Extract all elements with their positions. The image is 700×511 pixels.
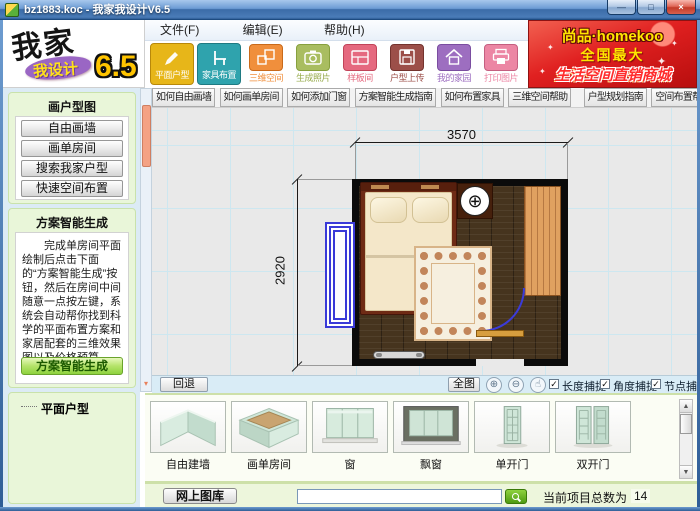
close-button[interactable]: × [666,0,696,15]
toolbar-myhome-button[interactable]: 我的家园 [432,43,476,85]
camera-icon [303,47,323,67]
tab-smart-guide[interactable]: 方案智能生成指南 [355,88,437,107]
dimension-height-label: 2920 [273,251,288,291]
thumb-double-door[interactable] [555,401,631,453]
dimension-line-left [297,179,298,366]
thumb-single-door[interactable] [474,401,550,453]
tab-3d-help[interactable]: 三维空间帮助 [508,88,571,107]
search-icon [512,493,519,500]
door-opening [476,359,524,366]
window-symbol[interactable] [325,222,355,328]
tab-how-free-wall[interactable]: 如何自由画墙 [152,88,215,107]
free-wall-button[interactable]: 自由画墙 [21,120,123,137]
room-icon [350,47,370,67]
search-input[interactable] [297,489,502,504]
snap-length-checkbox[interactable]: ✓ [549,379,559,389]
logo-text-2: 我设计 [32,57,78,81]
project-count-value: 14 [631,489,650,503]
logo-version: 6.5 [95,50,137,84]
snap-node-checkbox[interactable]: ✓ [651,379,661,389]
statusbar: 网上图库 当前项目总数为 14 [145,483,697,507]
sidebar-section-smart: 方案智能生成 完成单房间平面绘制后点击下面的“方案智能生成”按钮，然后在房间中间… [8,208,136,388]
door-leaf[interactable] [476,330,524,337]
app-window: bz1883.koc - 我家我设计V6.5 — □ × 我家 我设计 6.5 … [0,0,700,511]
search-button[interactable] [505,489,527,504]
zoom-out-icon[interactable]: ⊖ [508,377,524,393]
scrollbar-thumb[interactable] [142,105,151,167]
zoom-in-icon[interactable]: ⊕ [486,377,502,393]
online-gallery-button[interactable]: 网上图库 [163,488,237,504]
toolbar-upload-button[interactable]: 户型上传 [385,43,429,85]
headboard [361,183,456,191]
tab-how-furniture[interactable]: 如何布置家具 [441,88,504,107]
scroll-down-icon[interactable]: ▼ [680,465,692,478]
scroll-up-icon[interactable]: ▲ [680,400,692,413]
minimize-button[interactable]: — [607,0,636,15]
window-title: bz1883.koc - 我家我设计V6.5 [24,0,170,20]
menu-item-edit[interactable]: 编辑(E) [232,20,294,40]
pillow [412,197,449,223]
sidebar-section-draw: 画户型图 自由画墙 画单房间 搜索我家户型 快速空间布置 [8,92,136,204]
banner-slogan-2: 生活空间直销商城 [529,64,696,85]
smart-generate-button[interactable]: 方案智能生成 [21,357,123,375]
tab-how-doors-windows[interactable]: 如何添加门窗 [287,88,350,107]
library-scroll-thumb[interactable] [680,414,692,434]
sidebar-section-tree: 平面户型 [8,392,136,504]
floorplan-canvas[interactable]: 3570 2920 ⊕ [152,108,697,375]
tab-plan-guide[interactable]: 户型规划指南 [584,88,647,107]
section-title: 方案智能生成 [9,214,135,231]
element-library: 自由建墙 画单房间 窗 [145,393,697,483]
promo-banner[interactable]: ✦ ✦ ✦ ✦ 尚品·homekoo 全国最大 生活空间直销商城 [528,20,697,88]
undo-button[interactable]: 回退 [160,377,208,392]
canvas-toolbar: 回退 全图 ⊕ ⊖ ☝ ✓ 长度捕捉 ✓ 角度捕捉 ✓ 节点捕捉 [152,375,697,393]
house-icon [444,47,464,67]
quick-layout-button[interactable]: 快速空间布置 [21,180,123,197]
library-scrollbar[interactable]: ▲ ▼ [679,399,693,479]
chair-icon [209,47,229,69]
thumb-window[interactable] [312,401,388,453]
menubar: 文件(F) 编辑(E) 帮助(H) [145,20,528,41]
tab-layout-help[interactable]: 空间布置帮助 [651,88,697,107]
project-count-label: 当前项目总数为 [543,489,627,506]
thumb-free-wall[interactable] [150,401,226,453]
app-icon [5,3,19,17]
printer-icon [491,47,511,67]
banner-brand: 尚品·homekoo [529,25,696,46]
banner-slogan-1: 全国最大 [529,45,696,65]
toolbar-floorplan-button[interactable]: 平面户型 [150,43,194,85]
wardrobe[interactable] [524,186,561,296]
menu-item-file[interactable]: 文件(F) [149,20,210,40]
section-title: 画户型图 [9,98,135,115]
window-titlebar: bz1883.koc - 我家我设计V6.5 — □ × [0,0,700,20]
ceiling-lamp-icon[interactable]: ⊕ [460,186,490,216]
scrollbar-down-arrow[interactable]: ▾ [141,377,151,391]
pencil-icon [162,47,182,69]
thumb-single-room[interactable] [231,401,307,453]
smart-generate-description: 完成单房间平面绘制后点击下面的“方案智能生成”按钮，然后在房间中间随意一点按左键… [22,239,122,365]
toolbar-print-button[interactable]: 打印图片 [479,43,523,85]
maximize-button[interactable]: □ [637,0,665,15]
dimension-width-label: 3570 [355,127,568,142]
tree-connector [21,406,37,407]
thumb-bay-window[interactable] [393,401,469,453]
app-logo: 我家 我设计 6.5 [3,20,145,88]
tree-node-floorplan[interactable]: 平面户型 [41,400,89,417]
toolbar-3d-button[interactable]: 三维空间 [244,43,288,85]
toolbar-furniture-button[interactable]: 家具布置 [197,43,241,85]
main-toolbar: 平面户型 家具布置 三维空间 生成照片 样板间 户型上传 [145,41,528,88]
canvas-vertical-scrollbar[interactable]: ▾ [140,88,152,392]
search-floorplan-button[interactable]: 搜索我家户型 [21,160,123,177]
snap-angle-checkbox[interactable]: ✓ [600,379,610,389]
tab-how-single-room[interactable]: 如何画单房间 [220,88,283,107]
menu-item-help[interactable]: 帮助(H) [313,20,376,40]
single-room-button[interactable]: 画单房间 [21,140,123,157]
pillow [370,197,407,223]
toolbar-photo-button[interactable]: 生成照片 [291,43,335,85]
help-tabbar: 如何自由画墙 如何画单房间 如何添加门窗 方案智能生成指南 如何布置家具 三维空… [152,88,697,108]
window-border-bottom [0,507,700,511]
wall-radiator[interactable] [373,351,425,359]
full-view-button[interactable]: 全图 [448,377,480,392]
toolbar-showroom-button[interactable]: 样板间 [338,43,382,85]
floppy-icon [397,47,417,67]
dimension-line-top [355,142,568,143]
pan-icon[interactable]: ☝ [530,377,546,393]
cubes-icon [256,47,276,67]
